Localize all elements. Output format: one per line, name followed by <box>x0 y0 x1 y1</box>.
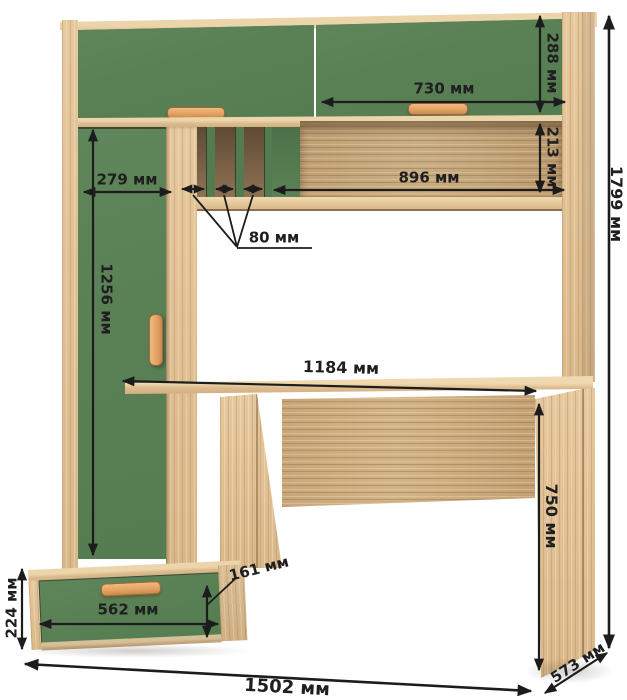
dim-column-width-label: 279 мм <box>96 173 157 188</box>
dim-overall-width-label: 1502 мм <box>244 677 331 699</box>
slot-end-panel <box>272 127 300 197</box>
tall-cabinet-side-panel <box>166 127 197 568</box>
pigeonhole-compartment <box>197 127 300 197</box>
desk-back-panel <box>282 395 535 507</box>
dim-hutch-door-width-label: 730 мм <box>413 82 474 97</box>
dim-tall-door-height-label: 1256 мм <box>99 263 114 335</box>
dim-desktop-width-label: 1184 мм <box>303 359 380 377</box>
furniture-dimension-diagram: 730 мм 288 мм 213 мм 896 мм 279 мм 80 мм… <box>0 0 627 700</box>
top-cabinet-left-door <box>78 24 316 120</box>
dim-shelf-opening-height-label: 213 мм <box>545 126 560 187</box>
dim-shelf-width-label: 896 мм <box>398 171 459 186</box>
dim-hutch-door-height-label: 288 мм <box>545 32 560 93</box>
dim-base-cabinet-height-label: 224 мм <box>5 577 20 638</box>
hutch-left-side-panel <box>62 20 78 572</box>
hutch-right-post-side <box>582 12 595 382</box>
dim-total-height-label: 1799 мм <box>608 166 624 242</box>
floor-shadow <box>18 644 250 658</box>
dim-desk-height-label: 750 мм <box>543 483 559 548</box>
desk-middle-leg <box>220 394 282 568</box>
dim-slot-width-label: 80 мм <box>249 231 300 246</box>
side-panel-edge-line <box>582 385 584 678</box>
hutch-right-post-front <box>562 12 582 382</box>
tall-cabinet-door-handle <box>149 314 163 366</box>
slot-divider <box>235 127 244 197</box>
leg-edge-line <box>256 394 258 568</box>
shelf-board <box>197 197 580 211</box>
dim-drawer-front-width-label: 562 мм <box>97 603 158 618</box>
drawer-handle <box>101 581 162 597</box>
slot-divider <box>206 127 215 197</box>
top-cabinet-right-door-handle <box>408 103 468 115</box>
